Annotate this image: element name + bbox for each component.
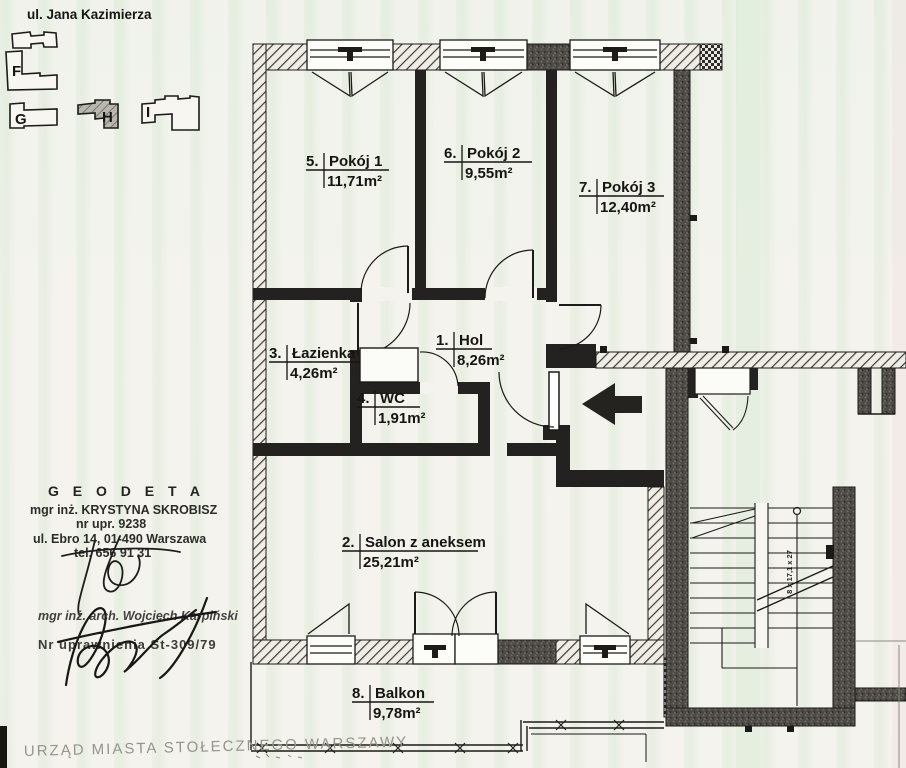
label-wc: 4. WC 1,91m² bbox=[357, 390, 426, 427]
label-pokoj3: 7. Pokój 3 12,40m² bbox=[579, 179, 664, 216]
salon-window-right bbox=[580, 604, 630, 664]
room-area: 9,55m² bbox=[465, 165, 513, 182]
staircase bbox=[690, 503, 906, 768]
room-name: Łazienka bbox=[292, 345, 356, 362]
stamp-surveyor-name: mgr inż. KRYSTYNA SKROBISZ bbox=[30, 503, 218, 517]
architect-name: mgr inż. arch. Wojciech Karpiński bbox=[38, 609, 238, 623]
city-office-stamp: URZĄD MIASTA STOŁECZNEGO WARSZAWY bbox=[24, 734, 409, 760]
building-label-h: H bbox=[102, 109, 113, 126]
entrance-arrow-icon bbox=[582, 383, 642, 425]
label-pokoj1: 5. Pokój 1 11,71m² bbox=[306, 153, 389, 190]
entrance-door bbox=[499, 372, 559, 430]
walls bbox=[253, 44, 906, 732]
room-name: WC bbox=[380, 390, 405, 407]
stamp-title: G E O D E T A bbox=[48, 483, 205, 499]
room-number: 7. bbox=[579, 179, 592, 196]
room-area: 8,26m² bbox=[457, 352, 505, 369]
scanned-floor-plan-page: F G H I ul. Jana Kazimierza bbox=[0, 0, 906, 768]
bathroom-niche bbox=[360, 348, 418, 382]
door-lazienka bbox=[358, 303, 410, 355]
building-label-i: I bbox=[146, 104, 150, 121]
label-pokoj2: 6. Pokój 2 9,55m² bbox=[444, 145, 532, 182]
room-area: 9,78m² bbox=[373, 705, 421, 722]
ground-stipple bbox=[256, 754, 302, 758]
door-pokoj1 bbox=[361, 246, 408, 293]
room-area: 11,71m² bbox=[327, 173, 382, 190]
stamp-address: ul. Ebro 14, 01-490 Warszawa bbox=[33, 532, 207, 546]
top-windows bbox=[307, 40, 660, 96]
room-name: Pokój 3 bbox=[602, 179, 655, 196]
scan-edge-artifact bbox=[0, 726, 7, 768]
room-name: Salon z aneksem bbox=[365, 534, 486, 551]
room-area: 25,21m² bbox=[363, 554, 419, 571]
surveyor-stamp: G E O D E T A mgr inż. KRYSTYNA SKROBISZ… bbox=[30, 483, 218, 616]
window-pokoj3 bbox=[570, 40, 660, 96]
room-number: 1. bbox=[436, 332, 449, 349]
landing-door bbox=[688, 368, 758, 430]
building-outline-top bbox=[12, 32, 57, 48]
door-wc bbox=[420, 352, 458, 386]
stair-dimension-note: 8 x 17,1 x 27 bbox=[785, 550, 794, 594]
room-name: Pokój 2 bbox=[467, 145, 520, 162]
label-balkon: 8. Balkon 9,78m² bbox=[352, 685, 434, 722]
label-hol: 1. Hol 8,26m² bbox=[436, 332, 505, 369]
salon-windows bbox=[307, 592, 630, 664]
label-salon: 2. Salon z aneksem 25,21m² bbox=[342, 534, 486, 571]
room-name: Hol bbox=[459, 332, 483, 349]
room-name: Balkon bbox=[375, 685, 425, 702]
room-number: 2. bbox=[342, 534, 355, 551]
window-pokoj2 bbox=[440, 40, 527, 96]
floor-plan-drawing: F G H I ul. Jana Kazimierza bbox=[0, 0, 906, 768]
architect-stamp: mgr inż. arch. Wojciech Karpiński Nr upr… bbox=[38, 598, 238, 685]
street-name-label: ul. Jana Kazimierza bbox=[27, 7, 152, 22]
room-area: 12,40m² bbox=[600, 199, 656, 216]
building-label-f: F bbox=[12, 63, 21, 80]
building-label-g: G bbox=[15, 111, 27, 128]
room-number: 3. bbox=[269, 345, 282, 362]
room-number: 6. bbox=[444, 145, 457, 162]
salon-window-left bbox=[307, 604, 355, 664]
room-area: 1,91m² bbox=[378, 410, 426, 427]
window-pokoj1 bbox=[307, 40, 393, 96]
door-pokoj3 bbox=[559, 305, 601, 349]
stamp-license: nr upr. 9238 bbox=[76, 517, 146, 531]
balcony-double-door bbox=[413, 592, 498, 664]
room-number: 8. bbox=[352, 685, 365, 702]
room-number: 5. bbox=[306, 153, 319, 170]
building-outline-i bbox=[142, 96, 199, 130]
room-name: Pokój 1 bbox=[329, 153, 382, 170]
room-area: 4,26m² bbox=[290, 365, 338, 382]
label-lazienka: 3. Łazienka 4,26m² bbox=[269, 345, 360, 382]
room-number: 4. bbox=[357, 390, 370, 407]
